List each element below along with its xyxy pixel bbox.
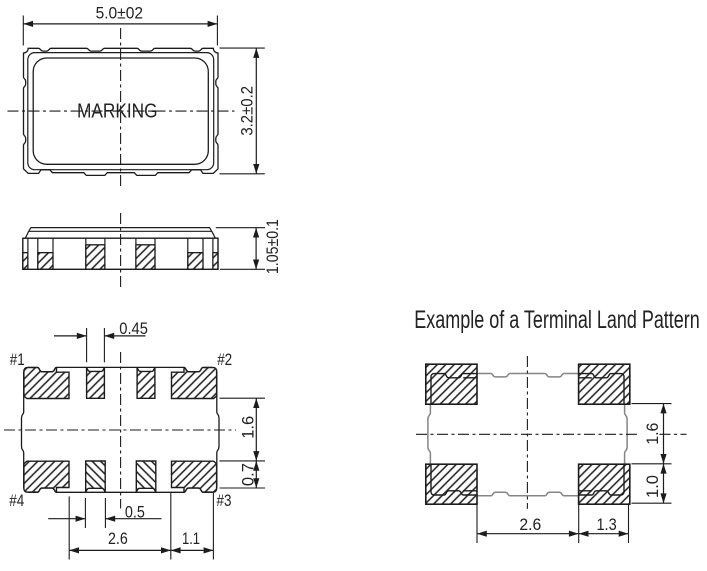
svg-text:MARKING: MARKING: [77, 100, 158, 123]
svg-text:2.6: 2.6: [108, 530, 128, 548]
svg-text:#3: #3: [217, 491, 232, 510]
svg-text:1.05±0.1: 1.05±0.1: [264, 219, 282, 274]
svg-text:1.1: 1.1: [182, 530, 200, 548]
svg-text:0.45: 0.45: [119, 320, 148, 338]
svg-text:0.7: 0.7: [240, 463, 258, 486]
svg-text:Example of a Terminal Land Pat: Example of a Terminal Land Pattern: [414, 306, 700, 334]
svg-text:1.0: 1.0: [644, 475, 662, 498]
svg-text:5.0±02: 5.0±02: [96, 5, 143, 23]
svg-text:#4: #4: [9, 491, 24, 510]
svg-text:1.6: 1.6: [644, 423, 662, 445]
svg-text:#1: #1: [10, 350, 25, 369]
svg-text:3.2±0.2: 3.2±0.2: [239, 86, 257, 136]
svg-text:1.6: 1.6: [240, 416, 258, 439]
svg-text:#2: #2: [217, 350, 232, 369]
svg-text:0.5: 0.5: [125, 503, 145, 521]
svg-text:2.6: 2.6: [519, 516, 541, 534]
svg-text:1.3: 1.3: [596, 516, 616, 534]
